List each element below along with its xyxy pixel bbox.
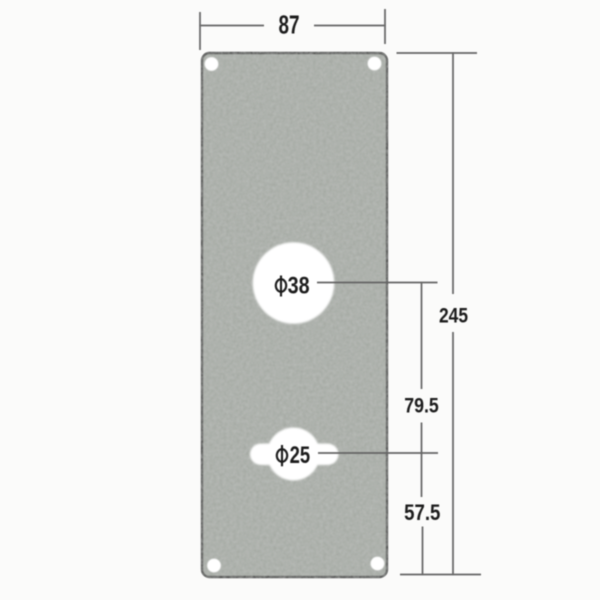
svg-text:87: 87 [279, 10, 300, 40]
svg-text:245: 245 [439, 305, 468, 328]
svg-text:79.5: 79.5 [404, 392, 439, 417]
svg-text:25: 25 [290, 443, 311, 469]
svg-text:38: 38 [288, 273, 310, 299]
svg-text:57.5: 57.5 [404, 500, 440, 525]
